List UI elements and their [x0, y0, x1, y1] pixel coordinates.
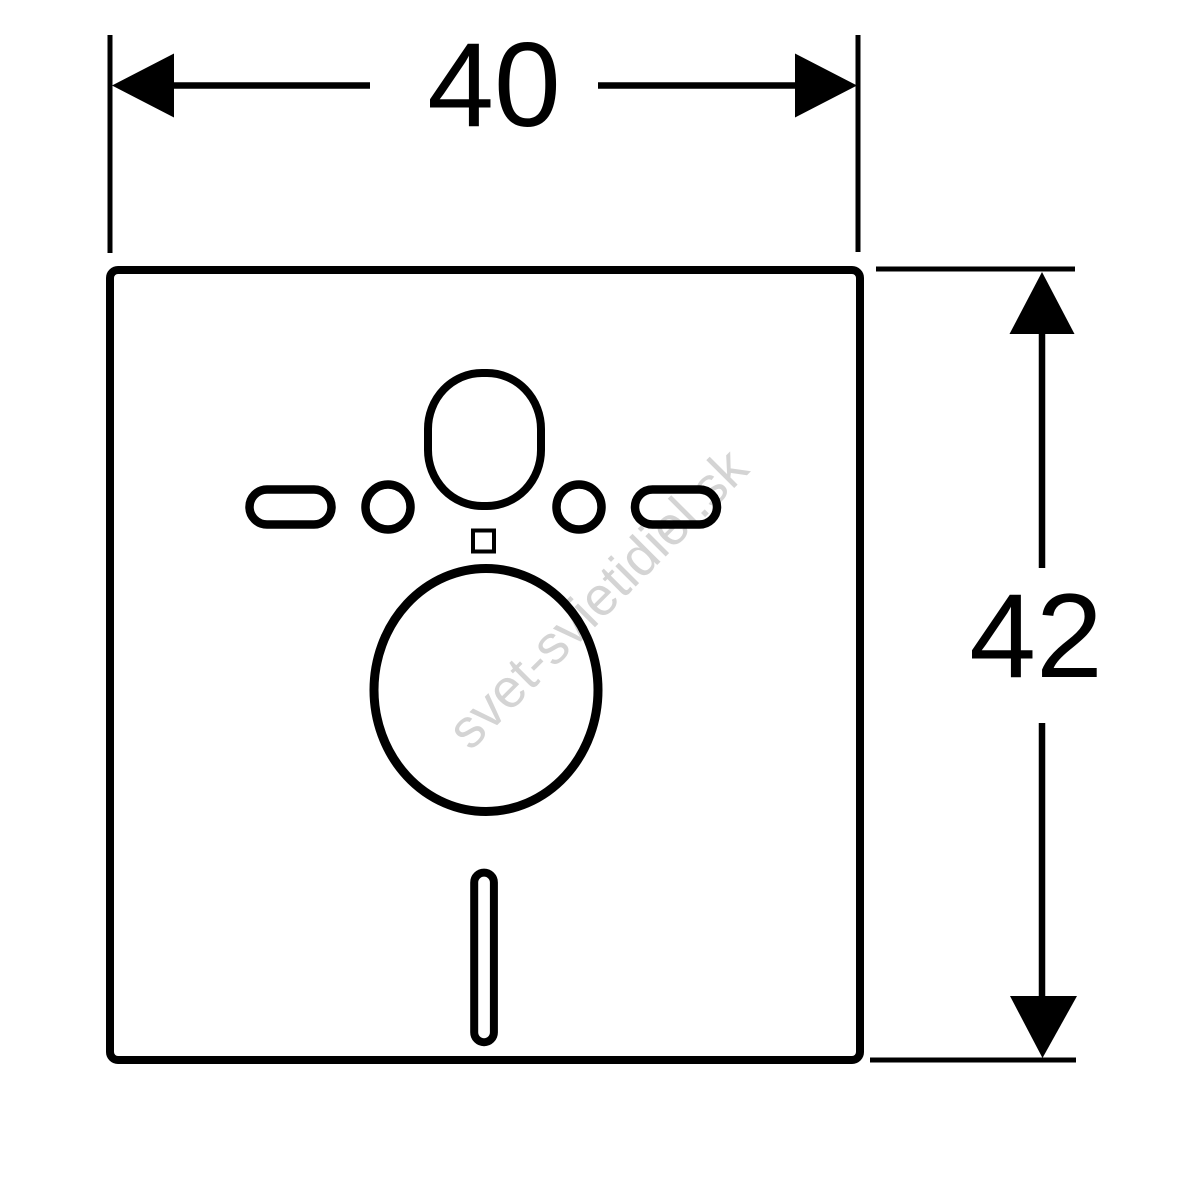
- svg-text:42: 42: [969, 569, 1102, 703]
- svg-text:40: 40: [427, 18, 560, 152]
